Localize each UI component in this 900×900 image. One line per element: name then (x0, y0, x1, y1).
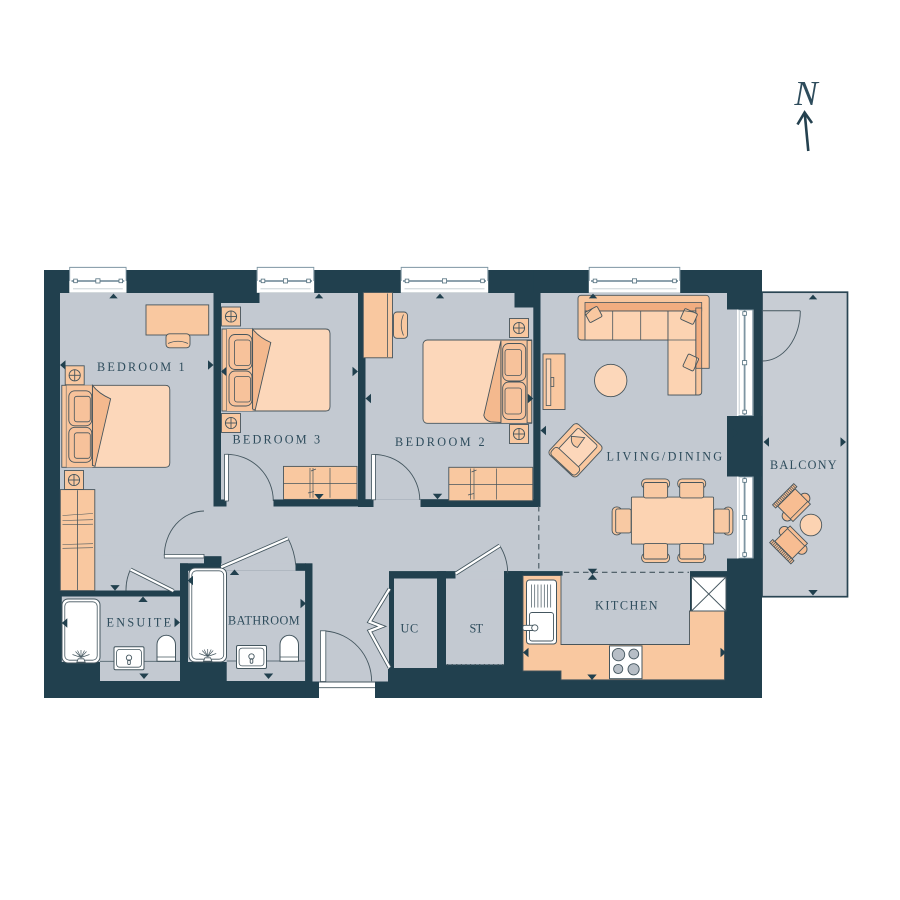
svg-text:BEDROOM 3: BEDROOM 3 (233, 433, 323, 447)
svg-text:LIVING/DINING: LIVING/DINING (607, 450, 725, 464)
svg-text:N: N (793, 74, 819, 113)
svg-text:KITCHEN: KITCHEN (595, 599, 660, 613)
svg-text:BATHROOM: BATHROOM (228, 614, 302, 628)
svg-text:BALCONY: BALCONY (770, 458, 839, 472)
svg-text:UC: UC (401, 622, 421, 636)
svg-text:BEDROOM 2: BEDROOM 2 (395, 435, 487, 449)
svg-text:ST: ST (470, 622, 486, 636)
svg-text:ENSUITE: ENSUITE (107, 616, 174, 630)
svg-text:BEDROOM 1: BEDROOM 1 (97, 360, 187, 374)
